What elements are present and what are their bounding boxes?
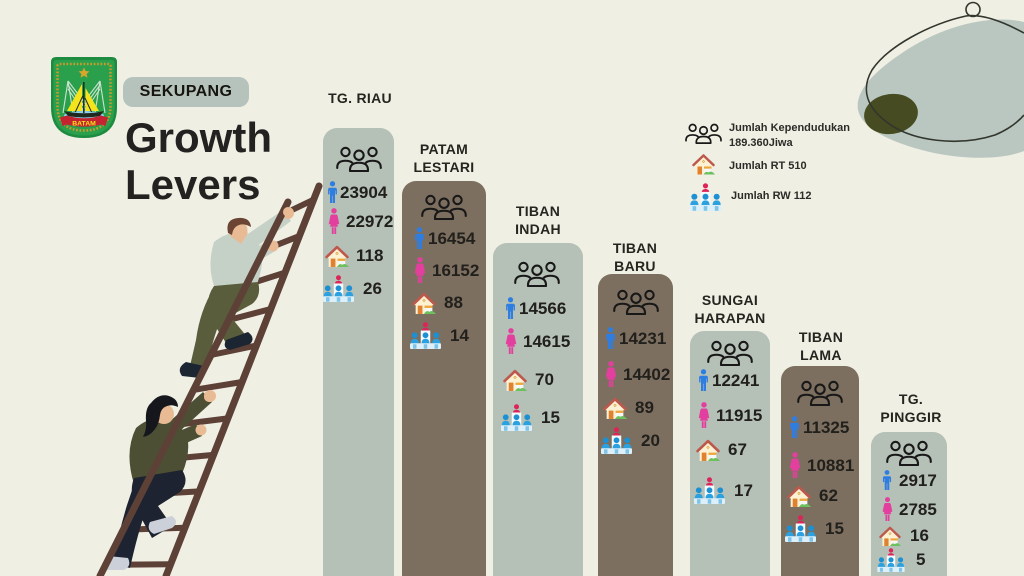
svg-text:BATAM: BATAM	[72, 121, 96, 128]
